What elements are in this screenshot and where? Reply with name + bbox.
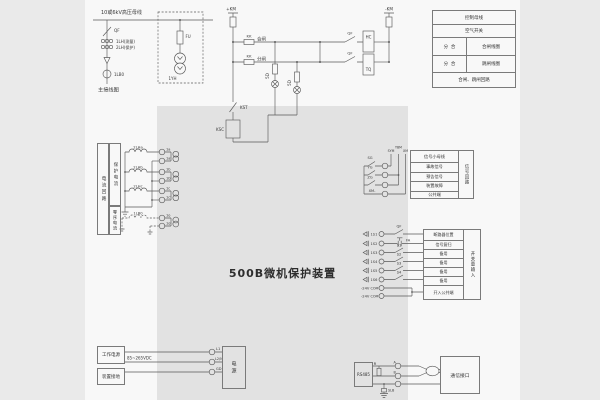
lamp2-label: 5D <box>287 80 292 86</box>
input-contact-s2: S2 <box>397 253 402 257</box>
terminal-1c: 1c <box>166 186 170 190</box>
shield-label: SLB <box>388 389 395 393</box>
coil-a-label: 2LHa <box>133 146 142 150</box>
input-contact-s1: S1 <box>397 244 402 248</box>
working-power-box: 工作电源 <box>97 346 125 364</box>
table-cell: 跳闸线圈 <box>467 56 515 72</box>
table-cell: 信号复归 <box>424 240 463 249</box>
coil-c-label: 2LHc <box>133 185 142 189</box>
power-wiring: L1 L2/N GD 85~265VDC <box>125 347 223 375</box>
protect-current-label: 保护电流 <box>109 143 121 206</box>
input-contact-qf: QF <box>397 225 402 229</box>
input-legend-table: 断路器位置 信号复归 备用 备用 备用 备用 开入公共端 开关量输入 <box>423 229 481 300</box>
contact-yg: YG <box>368 166 373 170</box>
table-cell: 装置故障 <box>411 181 458 191</box>
positive-bus-label: +KM <box>226 7 236 12</box>
qf-breaker-label: QF <box>114 28 120 33</box>
table-cell: 合闸线圈 <box>467 38 515 55</box>
control-wiring: +KM KK 合闸 QF HC KK 分闸 QF TQ <box>216 7 394 143</box>
main-wiring: 10或6kV高压母线 QF 1LH(测量) 2LH(保护) 1LB0 主接线图 <box>93 9 213 94</box>
terminal-1b2: 1b′ <box>166 176 171 180</box>
terminating-resistor-label: R <box>374 361 377 366</box>
ct-protect-label: 2LH(保护) <box>116 44 135 50</box>
current-wiring: 2LHa 1a 1a′ 2LHb 1b 1b′ 2LHc 1c 1c′ <box>120 146 179 235</box>
table-cell: 公共端 <box>411 191 458 199</box>
terminal-1a: 1a <box>166 147 170 151</box>
table-cell: 控制母线 <box>433 11 515 24</box>
input-1s4: 1S4 <box>371 260 379 264</box>
input-1s1: 1S1 <box>371 232 378 236</box>
table-cell: 备用 <box>424 276 463 285</box>
close-coil-label: HC <box>366 35 372 40</box>
lamp1-label: 5D <box>265 73 270 79</box>
minus-24v-1: -24V <box>361 287 370 291</box>
negative-bus-label: -KM <box>385 7 393 12</box>
terminal-1b: 1b <box>166 167 171 171</box>
power-terminal-l1: L1 <box>216 347 220 351</box>
main-diagram-caption: 主接线图 <box>98 86 119 94</box>
input-1s2: 1S2 <box>371 242 378 246</box>
signal-bus-ybm: YBM <box>395 146 402 150</box>
ct-measure-label: 1LH(测量) <box>116 38 135 44</box>
input-wiring: 1S1 1S2 1S3 1S4 1S5 1S6 QF FA S1 S2 S3 S… <box>361 225 423 299</box>
signal-table-main: 信号小母线 事故信号 预告信号 装置故障 公共端 <box>411 151 459 198</box>
terminal-1c2: 1c′ <box>166 195 171 199</box>
pt-label: 1YH <box>169 76 177 81</box>
contact-sg: SG <box>367 156 372 160</box>
hv-bus-label: 10或6kV高压母线 <box>101 9 142 16</box>
device-ground-box: 装置接地 <box>97 368 125 385</box>
voltage-range-label: 85~265VDC <box>127 356 152 361</box>
input-table-side-label: 开关量输入 <box>464 230 480 299</box>
terminal-1o: 1o <box>166 213 170 217</box>
table-cell: 备用 <box>424 249 463 258</box>
contact-xm-neg: XM- <box>369 189 377 193</box>
zero-ct-label: 1LB0 <box>114 72 125 77</box>
signal-table-side-label: 信号回路 <box>459 151 473 198</box>
device-title: 500B微机保护装置 <box>157 265 408 281</box>
rs485-box: RS485 <box>354 362 373 387</box>
table-cell: 合闸、跳闸回路 <box>433 72 515 87</box>
pt-branch: FU 1YH <box>158 12 203 83</box>
current-loop-label: 电流回路 <box>97 143 109 235</box>
table-cell: 备用 <box>424 258 463 267</box>
comm-wiring: R A B SLB <box>373 361 440 398</box>
table-cell: 断路器位置 <box>424 230 463 240</box>
com-label-1: COM <box>371 287 379 291</box>
zero-current-label: 零序电流 <box>109 206 121 235</box>
table-row: 分 合 合闸线圈 <box>433 37 515 55</box>
com-label-2: COM <box>371 295 379 299</box>
terminal-1a2: 1a′ <box>166 156 171 160</box>
table-cell: 空气开关 <box>433 24 515 37</box>
trip-coil-label: TQ <box>365 67 372 72</box>
ksc-label: KSC <box>216 127 224 132</box>
comm-interface-box: 通信接口 <box>440 356 480 394</box>
kk-close-label: KK <box>247 34 252 39</box>
input-contact-fa: FA <box>406 239 411 243</box>
power-module-box: 电源 <box>222 346 246 389</box>
minus-24v-2: -24V <box>361 295 370 299</box>
table-cell: 开入公共端 <box>424 285 463 299</box>
table-cell: 预告信号 <box>411 172 458 182</box>
signal-wiring: SYM YBM XM SG YG ZG XM- <box>364 146 408 197</box>
control-legend-table: 控制母线 空气开关 分 合 合闸线圈 分 合 跳闸线圈 合闸、跳闸回路 <box>432 10 516 88</box>
table-cell: 信号小母线 <box>411 151 458 162</box>
table-cell: 事故信号 <box>411 162 458 172</box>
schematic-page: 10或6kV高压母线 QF 1LH(测量) 2LH(保护) 1LB0 主接线图 … <box>0 0 600 400</box>
pt-fuse-label: FU <box>186 34 191 39</box>
table-cell: 分 合 <box>433 56 467 72</box>
terminal-1o2: 1o′ <box>166 221 171 225</box>
aux-open-label: QF <box>347 51 352 56</box>
open-label: 分闸 <box>257 56 266 63</box>
kst-label: KST <box>240 105 248 110</box>
kk-open-label: KK <box>247 54 252 59</box>
table-cell: 备用 <box>424 267 463 276</box>
table-row: 分 合 跳闸线圈 <box>433 55 515 72</box>
coil-b-label: 2LHb <box>133 166 143 170</box>
coil-o-label: 1LB0 <box>133 212 143 216</box>
signal-legend-table: 信号小母线 事故信号 预告信号 装置故障 公共端 信号回路 <box>410 150 474 199</box>
aux-close-label: QF <box>347 31 352 36</box>
signal-bus-sym: SYM <box>388 149 395 153</box>
close-label: 合闸 <box>257 36 266 43</box>
contact-zg: ZG <box>367 176 372 180</box>
input-1s3: 1S3 <box>371 251 378 255</box>
input-table-main: 断路器位置 信号复归 备用 备用 备用 备用 开入公共端 <box>424 230 464 299</box>
table-cell: 分 合 <box>433 38 467 55</box>
signal-bus-xm: XM <box>403 149 408 153</box>
power-terminal-gd: GD <box>216 367 222 371</box>
